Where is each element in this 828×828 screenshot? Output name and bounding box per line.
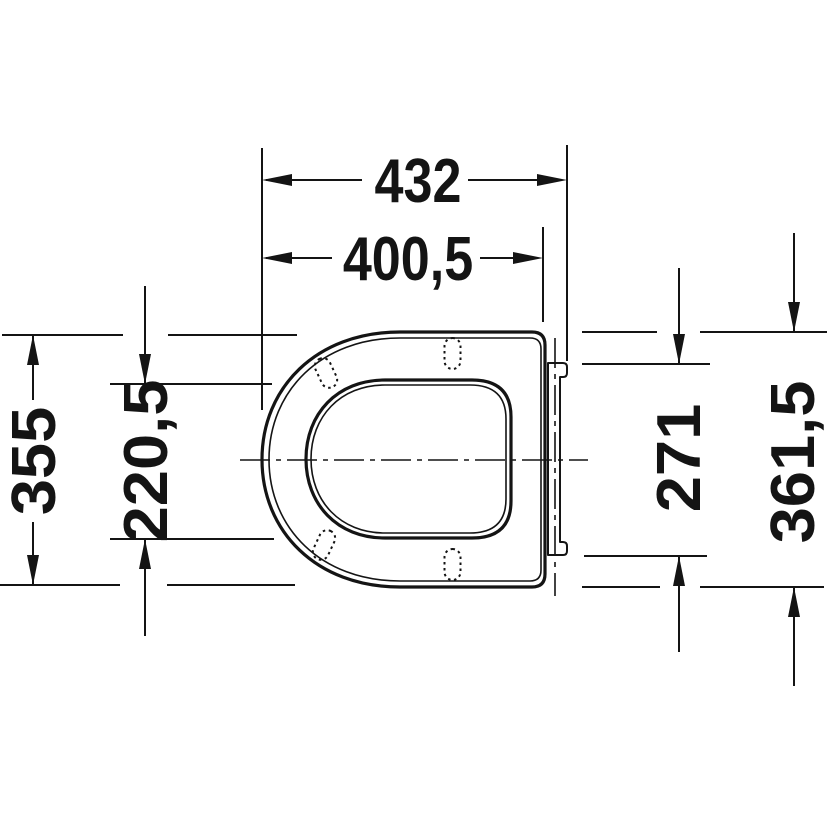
dimension-opening-width: 220,5 [110,286,274,636]
technical-drawing: 432 400,5 355 220,5 271 [0,0,828,828]
seat-opening-inner-line [311,385,506,533]
arrowhead-up [27,335,39,365]
arrowhead-up [139,539,151,569]
arrowhead-down [27,555,39,585]
bumper-bottom-center [445,549,461,580]
seat-opening-contour [306,380,511,538]
arrowhead-right [513,252,543,264]
arrowhead-up [788,587,800,617]
bumper-top-center [445,338,461,369]
arrowhead-right [537,174,567,186]
dim-label-lid-width: 361,5 [758,381,827,544]
seat-drawing-svg: 432 400,5 355 220,5 271 [0,0,828,828]
bumper-top-left [312,356,340,391]
dim-label-hinge-span: 271 [644,404,713,513]
arrowhead-down [788,302,800,332]
arrowhead-down [673,334,685,364]
dim-label-seat-width: 355 [0,407,69,516]
dim-label-body-length: 400,5 [343,225,473,294]
bumper-bottom-left [310,528,338,563]
dimension-hinge-span: 271 [582,268,714,652]
arrowhead-left [262,252,292,264]
seat-body [240,332,588,596]
arrowhead-up [673,556,685,586]
hinge-plate [548,363,567,555]
dimension-body-length: 400,5 [262,225,543,322]
dim-label-overall-length: 432 [375,147,462,216]
arrowhead-left [262,174,292,186]
dim-label-opening-width: 220,5 [111,380,180,543]
